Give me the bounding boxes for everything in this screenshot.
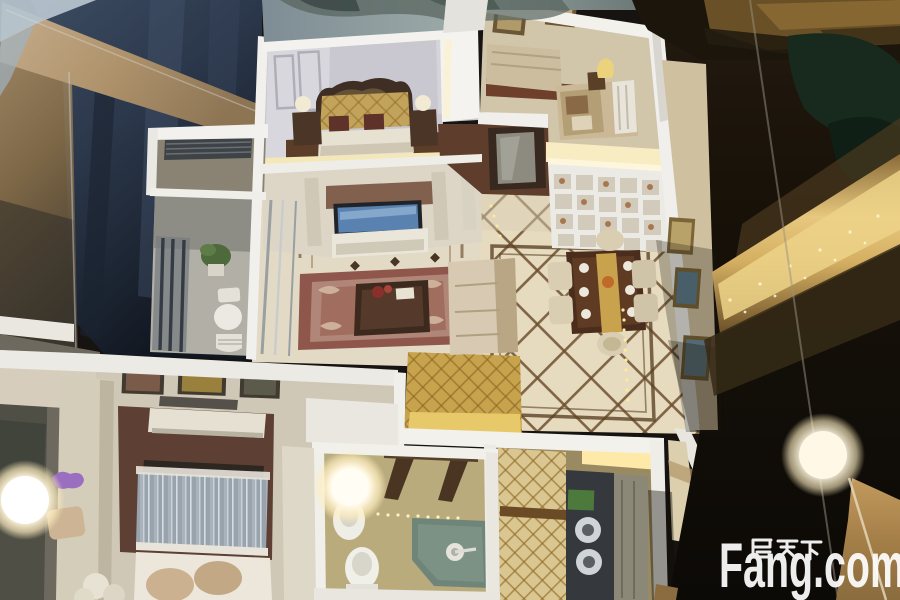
svg-text:Fang.com: Fang.com [719,531,900,600]
